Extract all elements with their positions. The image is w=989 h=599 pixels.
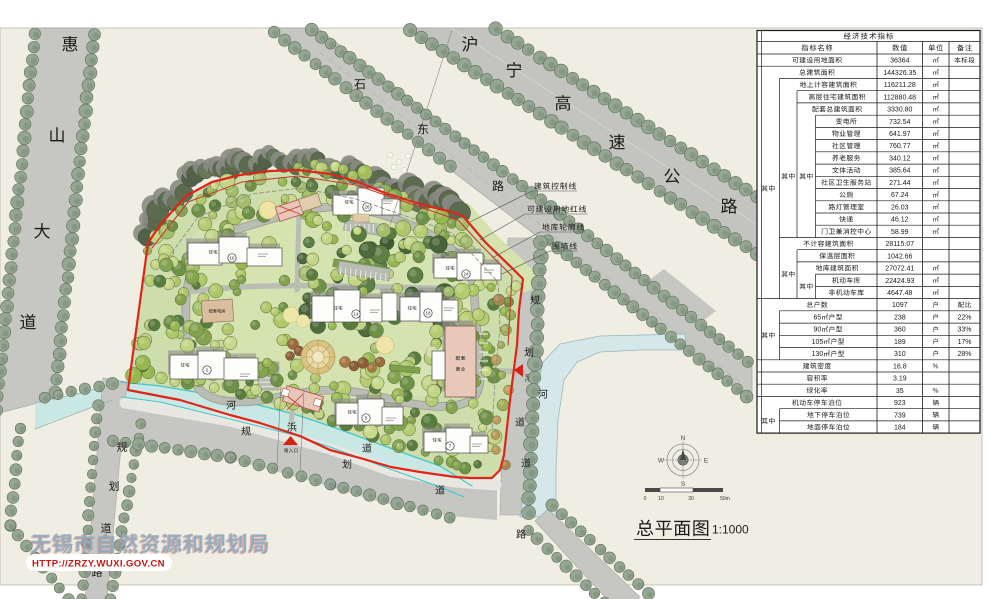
svg-text:144326.35: 144326.35	[883, 70, 916, 77]
svg-text:189: 189	[894, 339, 906, 346]
svg-text:105: 105	[812, 339, 824, 346]
svg-text:50m: 50m	[720, 496, 730, 502]
svg-text:46.12: 46.12	[891, 217, 909, 224]
svg-text:340.12: 340.12	[889, 156, 911, 163]
svg-text:760.77: 760.77	[889, 143, 911, 150]
svg-text:310: 310	[894, 351, 906, 358]
svg-text:67.24: 67.24	[891, 192, 909, 199]
svg-text:S: S	[681, 481, 686, 488]
svg-text:22%: 22%	[957, 314, 971, 321]
svg-text:W: W	[658, 458, 665, 465]
svg-text:16: 16	[229, 256, 235, 261]
svg-text:238: 238	[894, 314, 906, 321]
svg-text:1:1000: 1:1000	[712, 523, 749, 537]
svg-text:16.8: 16.8	[893, 363, 907, 370]
svg-text:14: 14	[353, 312, 359, 317]
svg-text:28%: 28%	[957, 351, 971, 358]
svg-text:0: 0	[644, 496, 647, 502]
svg-text:130: 130	[812, 351, 824, 358]
svg-text:65: 65	[814, 314, 822, 321]
svg-text:641.97: 641.97	[889, 131, 911, 138]
svg-text:HTTP://ZRZY.WUXI.GOV.CN: HTTP://ZRZY.WUXI.GOV.CN	[32, 559, 165, 570]
svg-text:739: 739	[894, 412, 906, 419]
svg-text:923: 923	[894, 400, 906, 407]
svg-text:732.54: 732.54	[889, 119, 911, 126]
svg-text:27072.41: 27072.41	[885, 266, 914, 273]
svg-text:385.64: 385.64	[889, 168, 911, 175]
svg-text:3330.80: 3330.80	[887, 107, 912, 114]
svg-text:33%: 33%	[957, 327, 971, 334]
svg-text:17%: 17%	[957, 339, 971, 346]
svg-text:184: 184	[894, 425, 906, 432]
svg-text:30: 30	[688, 496, 694, 502]
svg-text:22424.93: 22424.93	[885, 278, 914, 285]
svg-text:18: 18	[425, 311, 431, 316]
svg-text:10: 10	[658, 496, 664, 502]
svg-text:4647.48: 4647.48	[887, 290, 912, 297]
svg-text:1097: 1097	[892, 302, 908, 309]
svg-text:26: 26	[364, 205, 370, 210]
svg-text:36364: 36364	[890, 58, 910, 65]
svg-text:58.99: 58.99	[891, 229, 909, 236]
svg-text:35: 35	[896, 388, 904, 395]
svg-text:1042.66: 1042.66	[887, 253, 912, 260]
svg-text:271.44: 271.44	[889, 180, 911, 187]
svg-text:90: 90	[814, 327, 822, 334]
svg-text:N: N	[681, 435, 686, 442]
svg-text:3.19: 3.19	[893, 376, 907, 383]
svg-text:360: 360	[894, 327, 906, 334]
svg-text:112880.48: 112880.48	[884, 94, 917, 101]
svg-text:26.03: 26.03	[891, 204, 909, 211]
svg-text:116211.28: 116211.28	[884, 82, 916, 89]
svg-text:28115.07: 28115.07	[885, 241, 914, 248]
svg-text:24: 24	[463, 272, 469, 277]
svg-text:E: E	[704, 458, 709, 465]
